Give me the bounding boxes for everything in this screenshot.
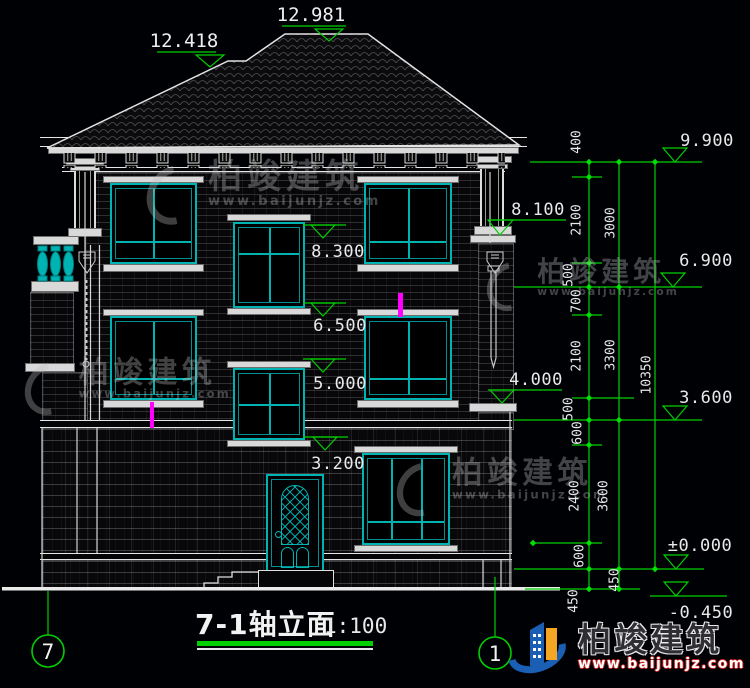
elevation-label: ±0.000 xyxy=(668,536,732,556)
dim-label: 400 xyxy=(570,130,585,153)
elevation-label: 6.500 xyxy=(313,316,367,336)
dim-label: 500 xyxy=(562,263,577,286)
ground-line xyxy=(2,587,560,591)
elevation-label: 8.100 xyxy=(511,200,565,220)
title-underline-white xyxy=(197,648,373,650)
dim-label: 500 xyxy=(562,397,577,420)
brand-logo-icon xyxy=(506,616,570,678)
brand-website: www.baijunjz.com xyxy=(578,656,745,672)
dim-label: 3000 xyxy=(604,207,619,238)
elevation-drawing: 12.418 12.981 9.900 6.900 3.600 ±0.000 -… xyxy=(0,0,750,688)
dentil-course xyxy=(62,153,505,168)
dim-label: 600 xyxy=(573,544,588,567)
axis-bubble-1: 1 xyxy=(489,642,502,666)
elevation-label: 4.000 xyxy=(509,370,563,390)
brand-name: 柏竣建筑 xyxy=(578,623,745,656)
ridge-level-label: 12.418 xyxy=(150,30,219,52)
drawing-title: 7-1轴立面 xyxy=(195,603,336,643)
entrance-steps xyxy=(190,572,258,589)
wall-edges xyxy=(42,172,510,588)
elevation-label: 8.300 xyxy=(311,242,365,262)
balcony-balusters xyxy=(38,246,74,281)
downspout-left xyxy=(83,280,89,367)
axis-bubble-7: 7 xyxy=(42,640,55,664)
hipped-roof xyxy=(47,34,519,148)
downspout-right xyxy=(488,266,499,367)
linework-overlay xyxy=(0,0,750,688)
dim-label: 2100 xyxy=(570,204,585,235)
bracket-ornaments xyxy=(79,252,503,273)
elevation-label: 9.900 xyxy=(680,131,734,151)
dim-label: 600 xyxy=(571,421,586,444)
elevation-label: 3.600 xyxy=(679,388,733,408)
dim-label: 2100 xyxy=(570,340,585,371)
dim-label: 700 xyxy=(570,289,585,312)
brand-logo: 柏竣建筑 www.baijunjz.com xyxy=(506,616,745,678)
title-underline-green xyxy=(197,641,373,646)
elevation-label: 3.200 xyxy=(311,454,365,474)
drawing-scale: 1:100 xyxy=(324,614,387,638)
dim-label: 2400 xyxy=(568,480,583,511)
elevation-label: 6.900 xyxy=(679,251,733,271)
dim-label: 450 xyxy=(567,589,582,612)
dim-label-overall: 10350 xyxy=(640,355,655,394)
elevation-label: 5.000 xyxy=(313,374,367,394)
dim-label: 3600 xyxy=(597,480,612,511)
dim-label: 3300 xyxy=(604,339,619,370)
dim-label: 450 xyxy=(608,568,623,591)
ridge-level-label: 12.981 xyxy=(277,4,346,26)
magenta-marks xyxy=(150,293,403,428)
